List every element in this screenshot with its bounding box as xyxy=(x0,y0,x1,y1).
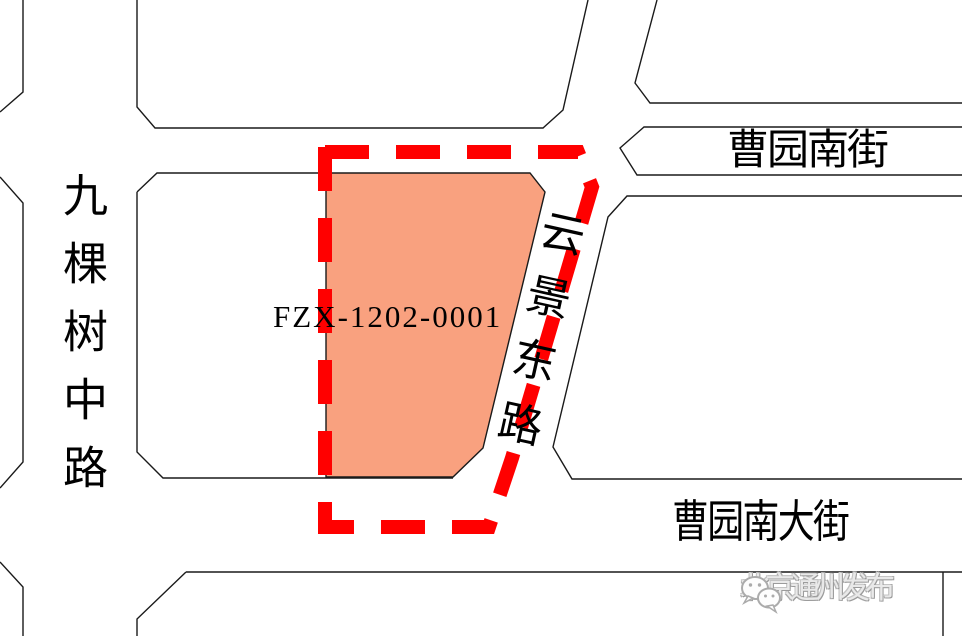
watermark: 北京通州发布 xyxy=(740,574,890,604)
parcel-id-label: FZX-1202-0001 xyxy=(273,301,502,332)
road-name-jiukeshu-middle-road: 九棵树中路 xyxy=(58,172,103,512)
road-name-caoyuan-south-avenue: 曹园南大街 xyxy=(672,500,848,545)
planning-map: 九棵树中路 曹园南街 云景东路 曹园南大街 FZX-1202-0001 北京通州… xyxy=(0,0,962,636)
wechat-icon xyxy=(740,574,786,618)
road-name-caoyuan-south-street: 曹园南街 xyxy=(727,130,887,172)
